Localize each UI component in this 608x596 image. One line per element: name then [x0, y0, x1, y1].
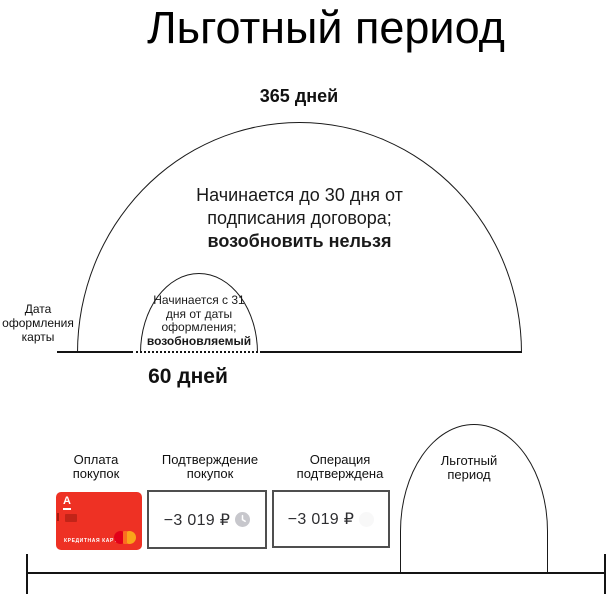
transaction-confirmed-box: −3 019 ₽: [272, 490, 390, 548]
transaction-pending-box: −3 019 ₽: [147, 490, 267, 549]
outer-period-description-text: Начинается до 30 дня от подписания догов…: [78, 184, 521, 230]
step-label-confirmation: Подтверждение покупок: [162, 453, 258, 481]
card-type-label: КРЕДИТНАЯ КАРТА: [64, 538, 121, 544]
grace-period-diagram: Льготный период 365 дней Начинается до 3…: [0, 0, 608, 596]
baseline-left-segment: [57, 351, 131, 353]
card-issue-date-label: Дата оформления карты: [2, 302, 74, 344]
step-label-confirmed: Операция подтверждена: [297, 453, 384, 481]
baseline-dotted-segment: [131, 351, 262, 353]
timeline-end-tick: [604, 554, 606, 594]
outer-period-days-label: 365 дней: [260, 86, 338, 107]
alfabank-logo-icon: А: [63, 496, 71, 510]
inner-period-days-label: 60 дней: [148, 365, 228, 389]
baseline-right-segment: [262, 351, 522, 353]
timeline-start-tick: [26, 554, 28, 594]
inner-period-description-text: Начинается с 31 дня от даты оформления;: [133, 294, 265, 335]
grace-period-arch: Льготный период: [400, 424, 548, 573]
outer-period-description-bold: возобновить нельзя: [78, 230, 521, 253]
step-label-purchase: Оплата покупок: [73, 453, 120, 481]
transaction-pending-amount: −3 019 ₽: [164, 510, 230, 530]
inner-period-description-bold: возобновляемый: [133, 335, 265, 349]
card-edge-mark: [57, 513, 59, 521]
transaction-confirmed-amount: −3 019 ₽: [288, 509, 354, 529]
inner-period-description: Начинается с 31 дня от даты оформления; …: [133, 294, 265, 348]
clock-icon-fading: [359, 512, 374, 527]
clock-icon: [235, 512, 250, 527]
page-title: Льготный период: [147, 1, 505, 55]
outer-period-description: Начинается до 30 дня от подписания догов…: [78, 184, 521, 253]
card-chip: [65, 514, 77, 522]
mastercard-icon: [114, 531, 136, 544]
credit-card: А КРЕДИТНАЯ КАРТА: [56, 492, 142, 550]
timeline-axis: [26, 572, 606, 574]
grace-period-arch-label: Льготный период: [401, 454, 537, 482]
